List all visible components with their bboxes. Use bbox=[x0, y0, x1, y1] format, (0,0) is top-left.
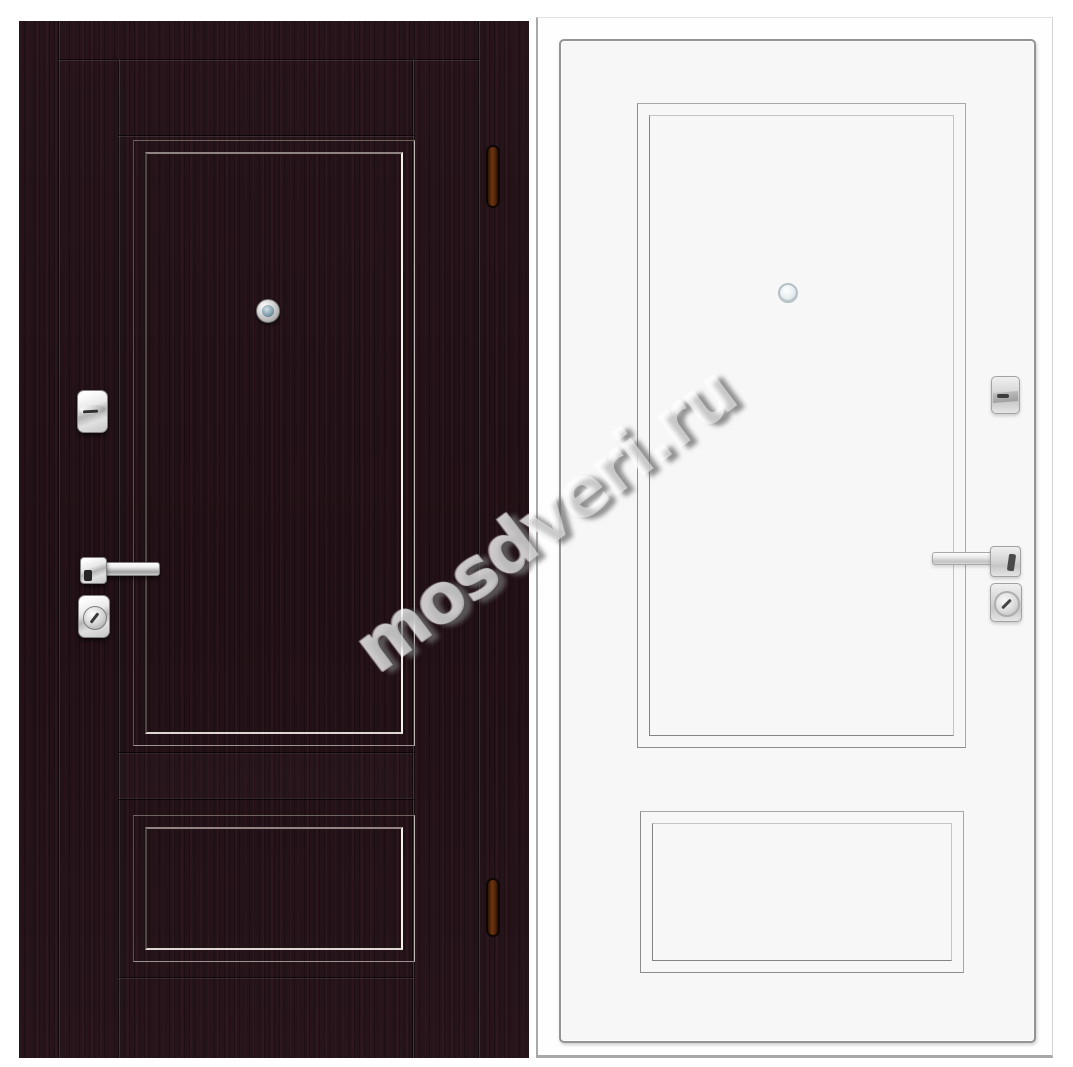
door-handle-rose bbox=[990, 546, 1021, 577]
upper-panel-inner-molding bbox=[649, 115, 954, 736]
peephole bbox=[778, 283, 798, 303]
lower-panel-inner-molding bbox=[145, 827, 403, 950]
frame-seam bbox=[118, 135, 414, 137]
peephole-lens bbox=[262, 305, 274, 317]
peephole bbox=[256, 299, 280, 323]
door-product-photo: mosdveri.ru bbox=[0, 0, 1073, 1067]
frame-seam bbox=[478, 21, 480, 1058]
cylinder-lock bbox=[990, 583, 1022, 622]
frame-seam bbox=[118, 59, 120, 1058]
lower-panel-inner-molding bbox=[652, 823, 952, 961]
door-leaf-outline bbox=[559, 39, 1036, 1043]
handle-neck-shadow bbox=[1007, 554, 1016, 572]
thumbturn-lock bbox=[991, 376, 1020, 414]
frame-seam bbox=[58, 21, 60, 1058]
door-front-view bbox=[19, 21, 529, 1058]
door-handle-rose bbox=[80, 557, 107, 584]
frame-seam bbox=[58, 59, 480, 61]
handle-neck-shadow bbox=[84, 570, 92, 581]
thumbturn-slot bbox=[997, 394, 1009, 398]
door-handle-lever bbox=[932, 552, 994, 565]
door-hinge-top bbox=[486, 145, 500, 208]
upper-panel-inner-molding bbox=[145, 152, 403, 734]
cylinder-lock bbox=[78, 595, 110, 638]
upper-panel-molding bbox=[637, 103, 966, 748]
door-back-view bbox=[536, 17, 1053, 1058]
lower-panel-molding bbox=[640, 811, 964, 973]
frame-seam bbox=[118, 977, 414, 979]
upper-lock bbox=[77, 390, 108, 433]
upper-panel-molding bbox=[133, 140, 415, 746]
middle-rail bbox=[118, 752, 414, 800]
lower-panel-molding bbox=[133, 815, 415, 962]
door-hinge-bottom bbox=[486, 878, 500, 937]
